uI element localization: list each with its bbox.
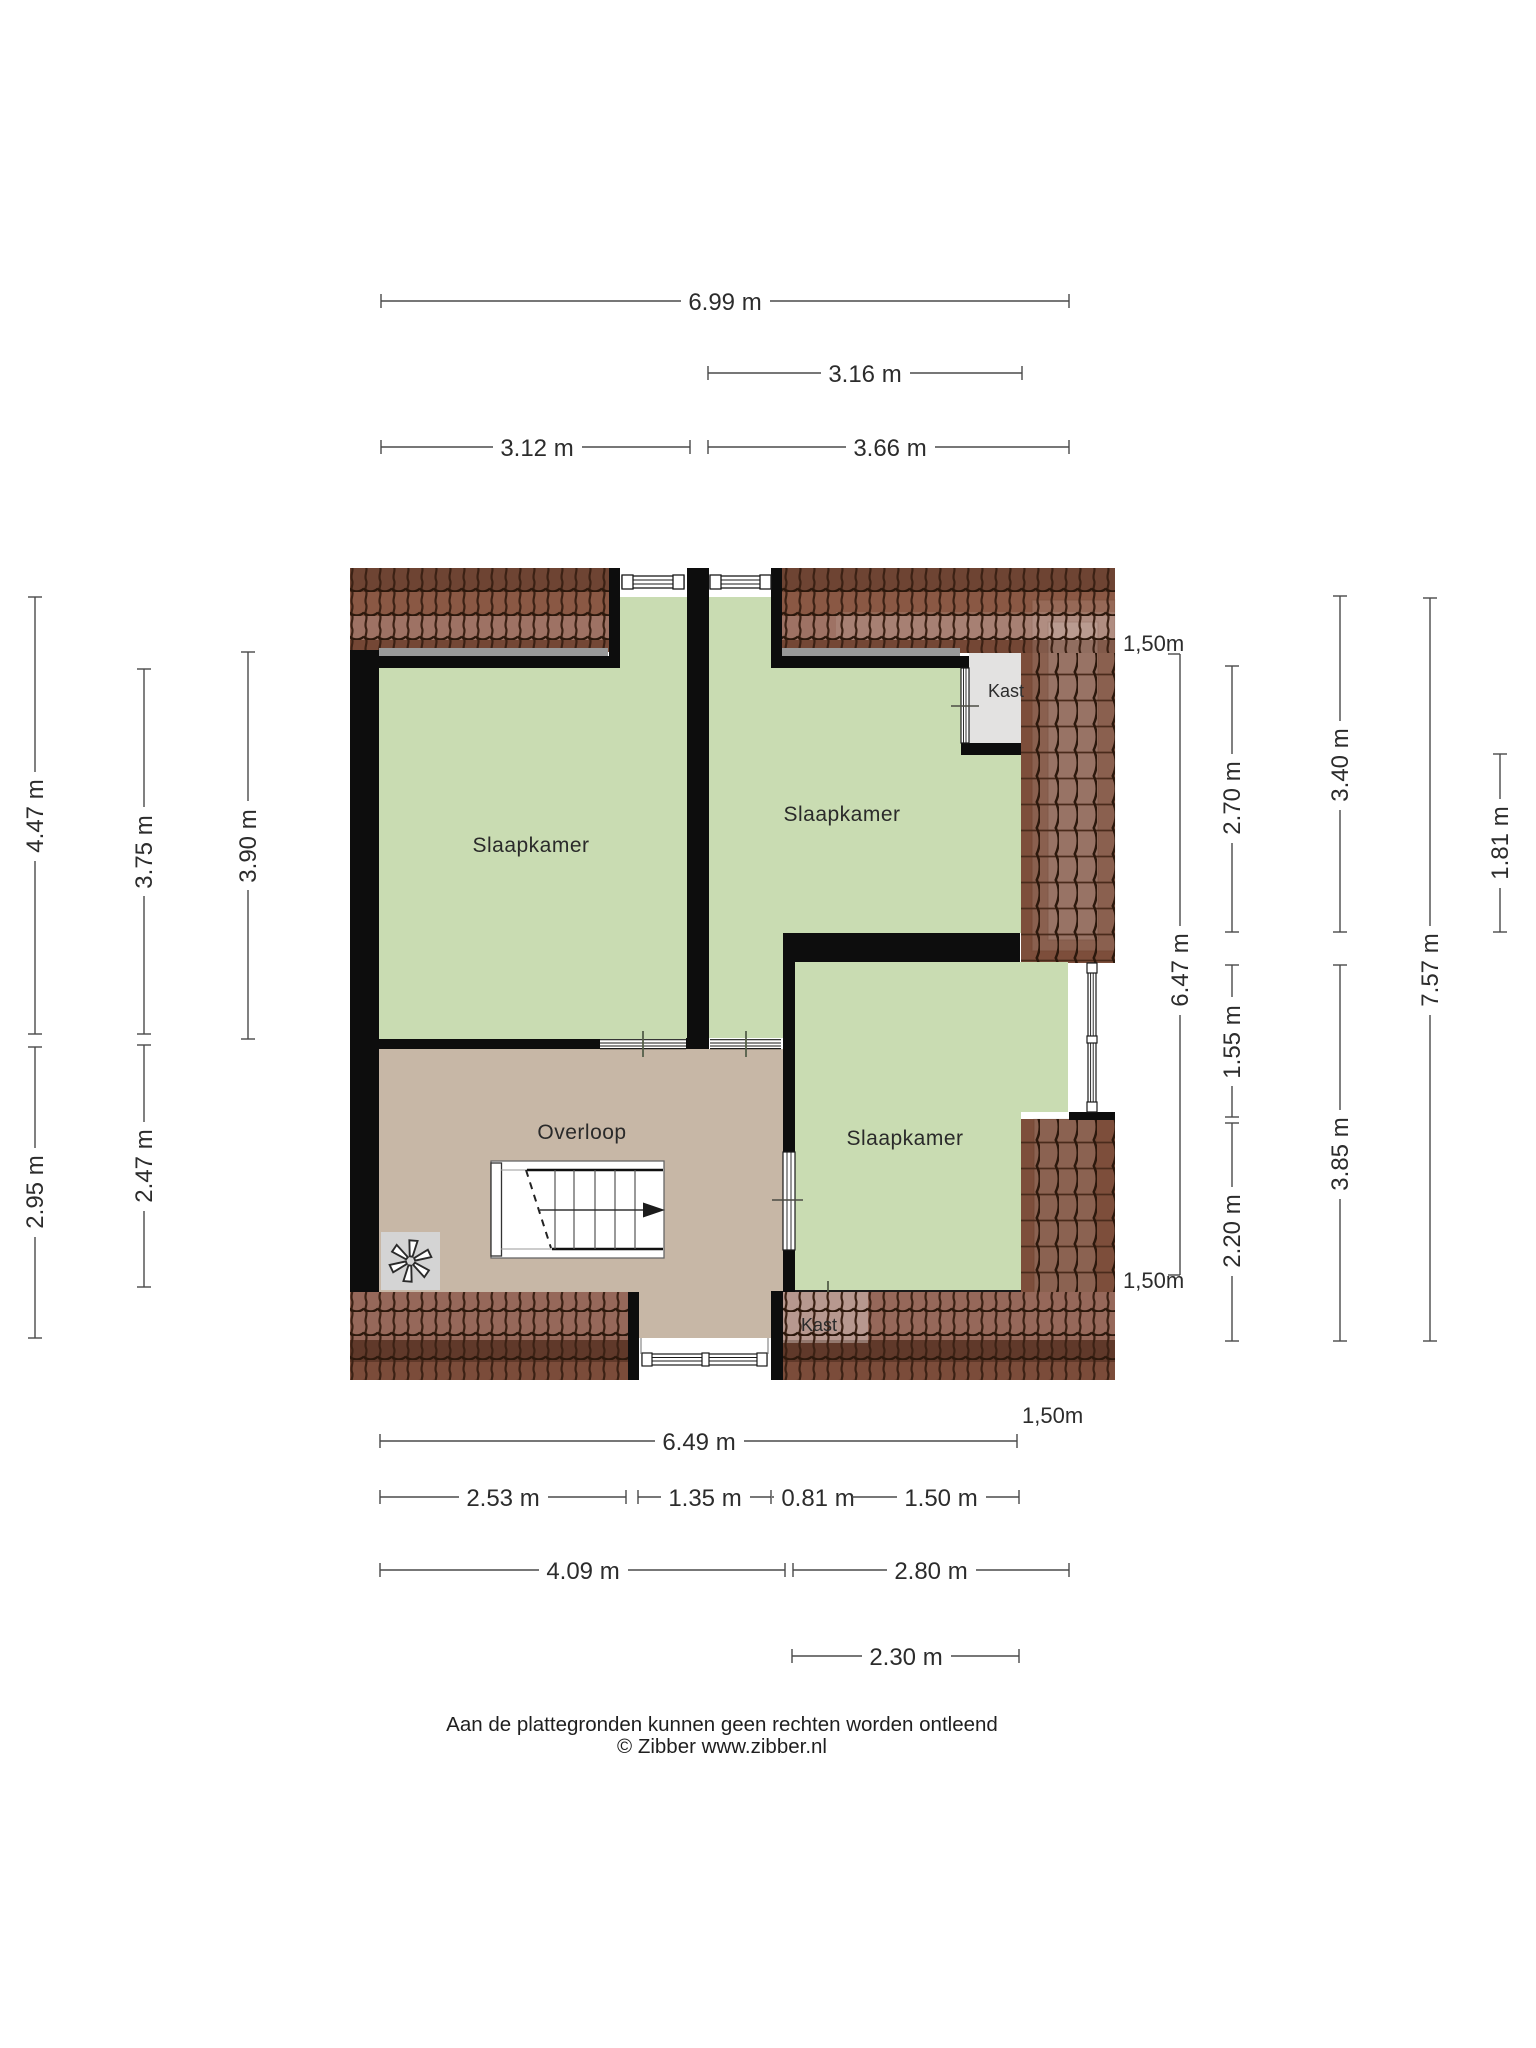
svg-text:1,50m: 1,50m xyxy=(1123,1268,1184,1293)
svg-text:1,50m: 1,50m xyxy=(1123,631,1184,656)
svg-text:1,50m: 1,50m xyxy=(1022,1403,1083,1428)
svg-text:Overloop: Overloop xyxy=(537,1121,626,1144)
svg-text:Aan de plattegronden kunnen ge: Aan de plattegronden kunnen geen rechten… xyxy=(446,1713,998,1736)
svg-text:2.30 m: 2.30 m xyxy=(869,1644,942,1671)
svg-text:1.50 m: 1.50 m xyxy=(904,1485,977,1512)
svg-text:0.81 m: 0.81 m xyxy=(781,1485,854,1512)
svg-text:7.57 m: 7.57 m xyxy=(1417,933,1444,1006)
svg-text:3.12 m: 3.12 m xyxy=(500,435,573,462)
svg-text:1.55 m: 1.55 m xyxy=(1219,1005,1246,1078)
svg-text:2.70 m: 2.70 m xyxy=(1219,761,1246,834)
svg-text:6.99 m: 6.99 m xyxy=(688,289,761,316)
svg-text:3.66 m: 3.66 m xyxy=(853,435,926,462)
svg-text:3.40 m: 3.40 m xyxy=(1327,728,1354,801)
svg-text:2.20 m: 2.20 m xyxy=(1219,1194,1246,1267)
svg-text:3.75 m: 3.75 m xyxy=(131,815,158,888)
svg-text:© Zibber www.zibber.nl: © Zibber www.zibber.nl xyxy=(617,1735,827,1758)
svg-text:Slaapkamer: Slaapkamer xyxy=(846,1127,963,1150)
svg-text:2.47 m: 2.47 m xyxy=(131,1129,158,1202)
svg-text:Kast: Kast xyxy=(801,1315,837,1335)
svg-text:3.85 m: 3.85 m xyxy=(1327,1117,1354,1190)
svg-text:3.90 m: 3.90 m xyxy=(235,809,262,882)
svg-text:2.53 m: 2.53 m xyxy=(466,1485,539,1512)
svg-text:4.47 m: 4.47 m xyxy=(22,779,49,852)
svg-text:Slaapkamer: Slaapkamer xyxy=(472,834,589,857)
svg-text:2.95 m: 2.95 m xyxy=(22,1155,49,1228)
svg-text:6.49 m: 6.49 m xyxy=(662,1429,735,1456)
svg-text:Slaapkamer: Slaapkamer xyxy=(783,803,900,826)
svg-text:6.47 m: 6.47 m xyxy=(1167,933,1194,1006)
svg-text:1.35 m: 1.35 m xyxy=(668,1485,741,1512)
svg-text:Kast: Kast xyxy=(988,681,1024,701)
svg-text:3.16 m: 3.16 m xyxy=(828,361,901,388)
svg-text:4.09 m: 4.09 m xyxy=(546,1558,619,1585)
svg-text:2.80 m: 2.80 m xyxy=(894,1558,967,1585)
svg-text:1.81 m: 1.81 m xyxy=(1487,806,1514,879)
